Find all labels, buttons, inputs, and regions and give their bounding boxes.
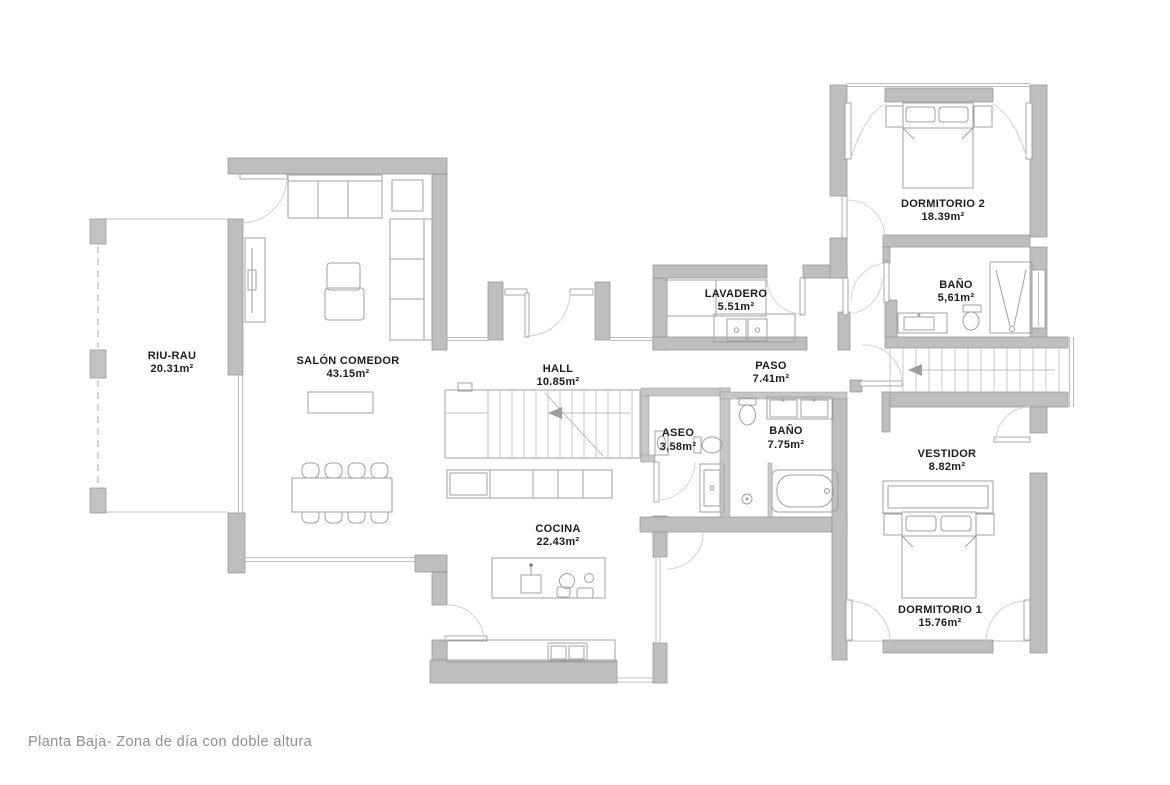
dormitorio1-furniture: [884, 512, 994, 598]
room-label-dormitorio-1: DORMITORIO 1: [898, 604, 982, 616]
room-area-dormitorio-1: 15.76m²: [918, 617, 961, 629]
room-label-riu-rau: RIU-RAU: [148, 350, 197, 362]
room-label-bano-2: BAÑO: [939, 278, 973, 291]
aseo-bano-fixtures: [655, 397, 838, 512]
room-area-lavadero: 5.51m²: [718, 301, 755, 313]
plan-caption: Planta Baja- Zona de día con doble altur…: [28, 734, 312, 750]
dormitorio2-furniture: [886, 103, 992, 188]
room-area-vestidor: 8.82m²: [929, 461, 966, 473]
room-area-riu-rau: 20.31m²: [150, 363, 193, 375]
room-labels: RIU-RAU 20.31m² SALÓN COMEDOR 43.15m² HA…: [148, 198, 985, 629]
room-label-lavadero: LAVADERO: [705, 288, 768, 300]
room-area-aseo: 3,58m²: [660, 441, 697, 453]
room-area-salon-comedor: 43.15m²: [326, 368, 369, 380]
floor-plan-page: RIU-RAU 20.31m² SALÓN COMEDOR 43.15m² HA…: [0, 0, 1170, 785]
staircase-upper: [890, 348, 1059, 392]
room-area-hall: 10.85m²: [536, 376, 579, 388]
room-label-hall: HALL: [543, 363, 574, 375]
vestidor-furniture: [883, 481, 993, 513]
room-label-bano: BAÑO: [769, 424, 803, 437]
room-label-cocina: COCINA: [535, 523, 580, 535]
cocina-furniture: [447, 470, 615, 663]
floor-plan-drawing: RIU-RAU 20.31m² SALÓN COMEDOR 43.15m² HA…: [0, 0, 1170, 785]
room-area-bano-2: 5,61m²: [938, 292, 975, 304]
room-label-aseo: ASEO: [662, 427, 695, 439]
room-label-dormitorio-2: DORMITORIO 2: [901, 198, 985, 210]
room-label-paso: PASO: [755, 360, 787, 372]
room-label-salon-comedor: SALÓN COMEDOR: [297, 354, 400, 367]
salon-furniture: [245, 175, 432, 523]
room-area-paso: 7.41m²: [753, 373, 790, 385]
room-area-cocina: 22.43m²: [536, 536, 579, 548]
room-area-dormitorio-2: 18.39m²: [921, 211, 964, 223]
room-label-vestidor: VESTIDOR: [918, 448, 977, 460]
staircase-lower: [445, 383, 640, 458]
room-area-bano: 7.75m²: [768, 439, 805, 451]
